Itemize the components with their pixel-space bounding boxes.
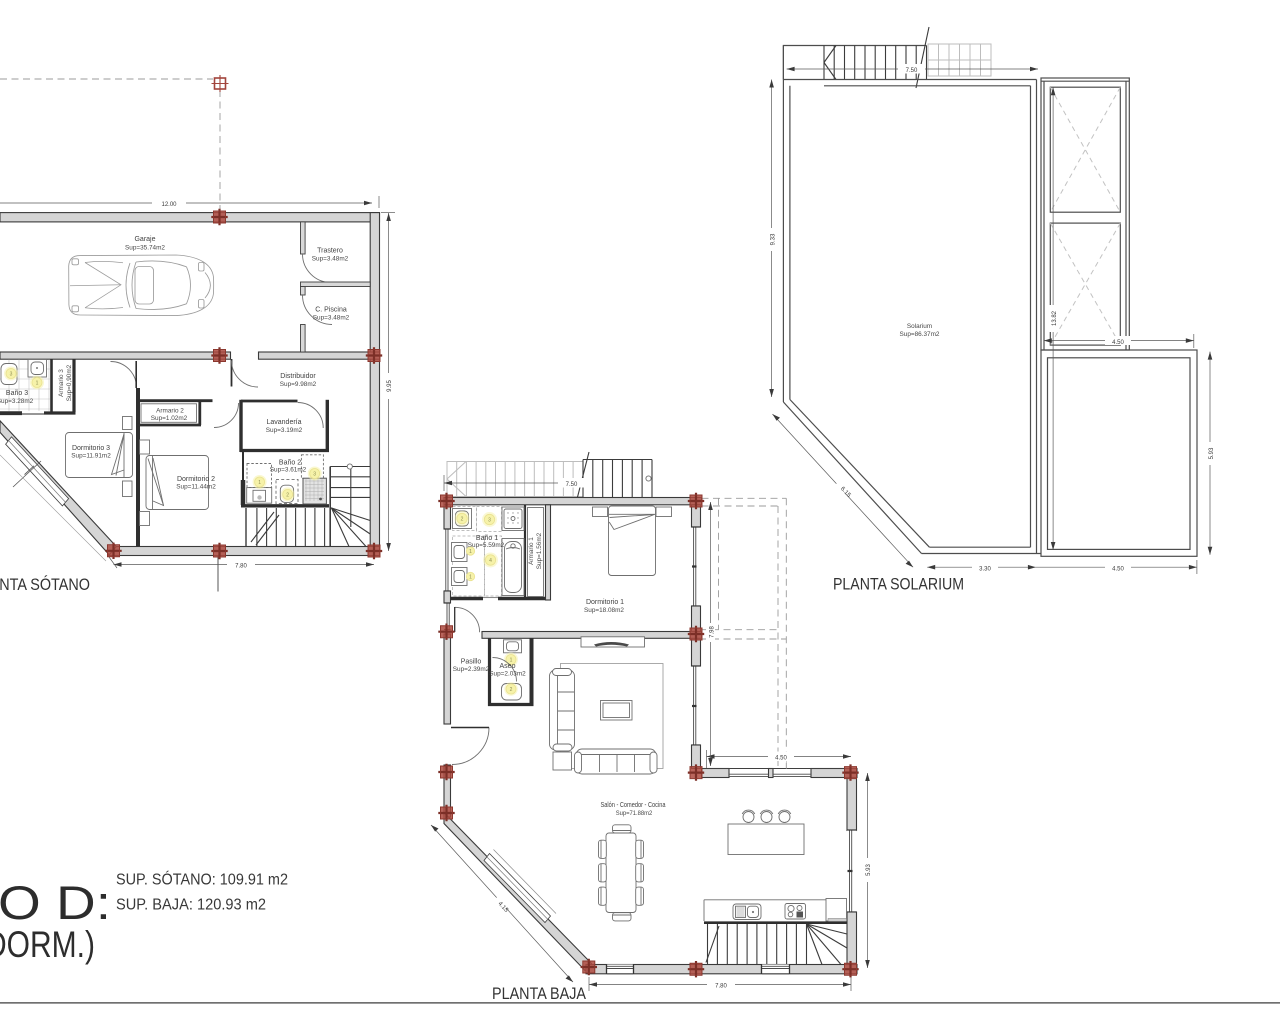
svg-text:1: 1 xyxy=(469,549,472,555)
svg-text:Armario 2: Armario 2 xyxy=(156,408,184,415)
svg-text:Dormitorio 2: Dormitorio 2 xyxy=(177,476,215,483)
svg-text:Sup=11.91m2: Sup=11.91m2 xyxy=(71,453,111,460)
svg-text:7.50: 7.50 xyxy=(566,482,578,488)
svg-text:Sup=1.02m2: Sup=1.02m2 xyxy=(151,415,188,422)
svg-text:12.00: 12.00 xyxy=(161,202,177,208)
svg-text:Sup=9.98m2: Sup=9.98m2 xyxy=(280,381,317,388)
svg-text:4.50: 4.50 xyxy=(775,756,787,762)
svg-text:Armario 1: Armario 1 xyxy=(528,537,535,565)
svg-text:4: 4 xyxy=(489,558,492,564)
svg-text:Solarium: Solarium xyxy=(907,323,932,330)
svg-text:PLANTA SOLARIUM: PLANTA SOLARIUM xyxy=(833,575,964,594)
svg-text:9.33: 9.33 xyxy=(770,233,776,245)
svg-text:7.80: 7.80 xyxy=(235,564,247,570)
svg-text:PLANTA BAJA: PLANTA BAJA xyxy=(492,984,587,1003)
svg-text:Sup=5.59m2: Sup=5.59m2 xyxy=(468,542,505,549)
svg-text:Pasillo: Pasillo xyxy=(461,659,482,666)
svg-text:4.50: 4.50 xyxy=(1112,567,1124,573)
svg-text:PLANTA SÓTANO: PLANTA SÓTANO xyxy=(0,575,90,594)
svg-text:9.95: 9.95 xyxy=(387,380,393,392)
svg-text:Baño 1: Baño 1 xyxy=(476,535,498,542)
svg-text:Aseo: Aseo xyxy=(500,663,516,670)
svg-text:Distribuidor: Distribuidor xyxy=(280,373,316,380)
svg-text:1: 1 xyxy=(258,480,261,486)
svg-text:Sup=35.74m2: Sup=35.74m2 xyxy=(125,245,165,252)
svg-text:O D:: O D: xyxy=(0,876,111,929)
svg-text:Sup=2.39m2: Sup=2.39m2 xyxy=(453,666,490,673)
svg-text:2: 2 xyxy=(510,687,513,693)
svg-text:2: 2 xyxy=(461,517,464,523)
svg-text:1: 1 xyxy=(469,575,472,581)
svg-text:3: 3 xyxy=(313,472,316,478)
svg-text:Sup=3.28m2: Sup=3.28m2 xyxy=(0,398,34,405)
svg-text:7.80: 7.80 xyxy=(715,984,727,990)
svg-text:Salón - Comedor - Cocina: Salón - Comedor - Cocina xyxy=(601,802,666,809)
svg-text:3: 3 xyxy=(10,372,13,378)
svg-text:DORM.): DORM.) xyxy=(0,924,95,965)
svg-text:Dormitorio 3: Dormitorio 3 xyxy=(72,445,110,452)
svg-text:Sup=71.88m2: Sup=71.88m2 xyxy=(616,810,653,817)
svg-text:Baño 3: Baño 3 xyxy=(6,390,28,397)
svg-text:Sup=3.61m2: Sup=3.61m2 xyxy=(270,467,307,474)
svg-text:SUP. BAJA: 120.93 m2: SUP. BAJA: 120.93 m2 xyxy=(116,897,266,914)
svg-text:Dormitorio 1: Dormitorio 1 xyxy=(586,599,624,606)
svg-text:7.98: 7.98 xyxy=(710,626,716,638)
svg-text:SUP. SÓTANO: 109.91 m2: SUP. SÓTANO: 109.91 m2 xyxy=(116,872,288,889)
svg-text:4.50: 4.50 xyxy=(1112,340,1124,346)
svg-text:3.30: 3.30 xyxy=(979,567,991,573)
svg-text:5.93: 5.93 xyxy=(1209,447,1215,459)
svg-text:Trastero: Trastero xyxy=(317,248,343,255)
svg-text:Sup=11.44m2: Sup=11.44m2 xyxy=(176,484,216,491)
svg-text:Lavandería: Lavandería xyxy=(266,419,301,426)
svg-text:Sup=3.48m2: Sup=3.48m2 xyxy=(312,256,349,263)
svg-text:Sup=18.08m2: Sup=18.08m2 xyxy=(584,607,624,614)
svg-text:13.82: 13.82 xyxy=(1052,310,1058,326)
svg-text:Sup=2.03m2: Sup=2.03m2 xyxy=(489,671,526,678)
svg-text:Baño 2: Baño 2 xyxy=(279,460,301,467)
svg-text:Sup=3.19m2: Sup=3.19m2 xyxy=(266,427,303,434)
svg-text:Armario 3: Armario 3 xyxy=(58,369,65,397)
svg-text:Sup=1.56m2: Sup=1.56m2 xyxy=(536,532,543,569)
svg-text:Sup=3.48m2: Sup=3.48m2 xyxy=(313,315,350,322)
svg-text:7.50: 7.50 xyxy=(906,68,918,74)
svg-text:5.93: 5.93 xyxy=(866,864,872,876)
svg-text:2: 2 xyxy=(286,492,289,498)
svg-text:Garaje: Garaje xyxy=(134,236,155,243)
svg-text:Sup=86.37m2: Sup=86.37m2 xyxy=(900,331,940,338)
svg-text:Sup=0,90m2: Sup=0,90m2 xyxy=(66,364,73,401)
svg-text:1: 1 xyxy=(36,381,39,387)
svg-text:C. Piscina: C. Piscina xyxy=(315,307,347,314)
svg-text:3: 3 xyxy=(488,518,491,524)
